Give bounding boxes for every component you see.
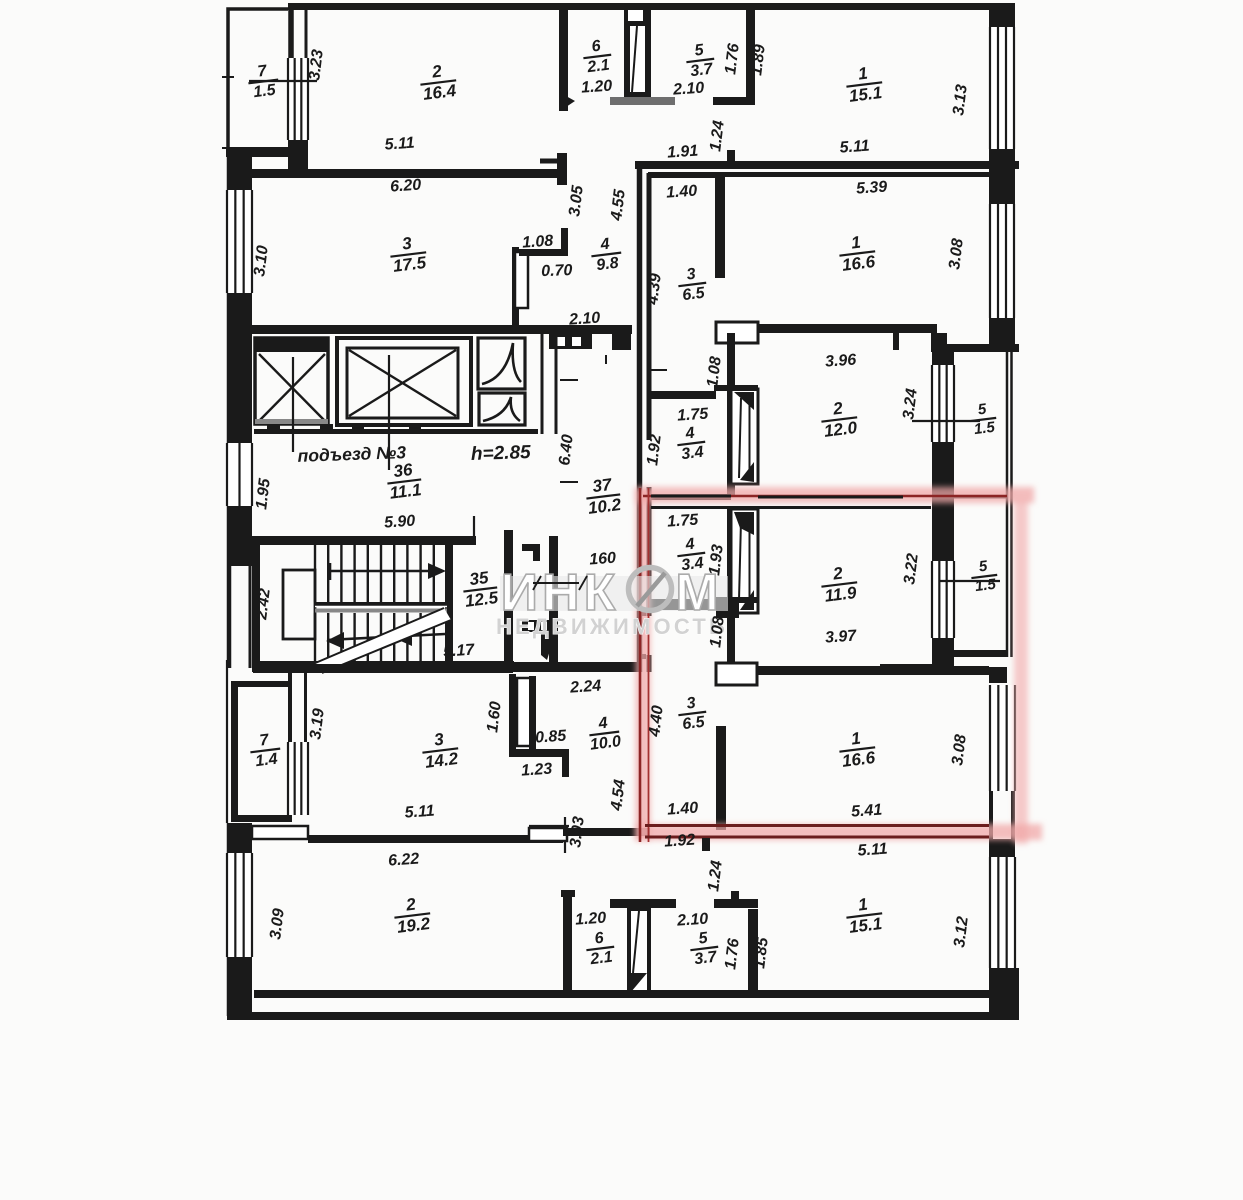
svg-text:1.5: 1.5 bbox=[252, 81, 277, 101]
svg-text:3.7: 3.7 bbox=[689, 60, 714, 80]
svg-text:11.1: 11.1 bbox=[389, 480, 423, 503]
svg-text:11.9: 11.9 bbox=[824, 583, 858, 606]
svg-text:5.41: 5.41 bbox=[851, 802, 883, 821]
svg-text:2.24: 2.24 bbox=[569, 678, 602, 697]
svg-text:0.85: 0.85 bbox=[535, 727, 568, 746]
svg-text:2.1: 2.1 bbox=[585, 57, 610, 77]
svg-text:3.96: 3.96 bbox=[825, 352, 857, 371]
svg-text:1.40: 1.40 bbox=[667, 800, 699, 819]
svg-text:10.2: 10.2 bbox=[587, 495, 623, 518]
svg-text:3.4: 3.4 bbox=[680, 444, 704, 464]
svg-text:12.5: 12.5 bbox=[464, 588, 500, 611]
svg-text:подъезд №3: подъезд №3 bbox=[297, 442, 406, 466]
svg-text:h=2.85: h=2.85 bbox=[471, 442, 532, 465]
svg-text:15.1: 15.1 bbox=[848, 914, 883, 937]
svg-text:16.4: 16.4 bbox=[422, 81, 458, 104]
svg-text:17.5: 17.5 bbox=[392, 253, 428, 276]
svg-text:36: 36 bbox=[392, 460, 414, 481]
svg-text:6.5: 6.5 bbox=[681, 713, 706, 733]
svg-text:2.1: 2.1 bbox=[588, 949, 613, 969]
svg-text:3.4: 3.4 bbox=[680, 555, 704, 575]
svg-text:3.7: 3.7 bbox=[693, 948, 718, 968]
svg-text:1.5: 1.5 bbox=[973, 419, 996, 438]
svg-text:1.20: 1.20 bbox=[581, 78, 613, 97]
svg-text:1.08: 1.08 bbox=[522, 233, 554, 252]
svg-text:35: 35 bbox=[468, 568, 490, 589]
svg-text:1.40: 1.40 bbox=[666, 183, 698, 202]
svg-text:5.11: 5.11 bbox=[404, 803, 435, 822]
svg-text:19.2: 19.2 bbox=[396, 914, 432, 937]
svg-text:2.10: 2.10 bbox=[676, 911, 709, 930]
svg-text:1.75: 1.75 bbox=[677, 405, 710, 424]
svg-text:5.11: 5.11 bbox=[384, 135, 415, 154]
svg-text:1.20: 1.20 bbox=[575, 910, 607, 929]
svg-text:5.11: 5.11 bbox=[857, 841, 888, 860]
svg-text:5.17: 5.17 bbox=[443, 641, 476, 660]
svg-text:5.90: 5.90 bbox=[384, 513, 416, 532]
svg-text:5.39: 5.39 bbox=[856, 179, 888, 198]
svg-text:6.5: 6.5 bbox=[681, 284, 706, 304]
svg-text:14.2: 14.2 bbox=[424, 749, 460, 772]
svg-text:1.92: 1.92 bbox=[664, 832, 696, 851]
svg-text:1.75: 1.75 bbox=[667, 511, 700, 530]
svg-text:1.4: 1.4 bbox=[254, 751, 278, 771]
svg-text:15.1: 15.1 bbox=[848, 83, 883, 106]
svg-text:0.70: 0.70 bbox=[541, 262, 573, 280]
svg-text:2.10: 2.10 bbox=[568, 310, 601, 329]
svg-text:3.97: 3.97 bbox=[825, 627, 858, 646]
svg-text:5.11: 5.11 bbox=[839, 138, 870, 157]
svg-text:1.91: 1.91 bbox=[667, 143, 699, 162]
svg-text:2.10: 2.10 bbox=[672, 80, 705, 99]
svg-text:НЕДВИЖИМОСТЬ: НЕДВИЖИМОСТЬ bbox=[496, 614, 728, 639]
svg-text:16.6: 16.6 bbox=[841, 252, 877, 275]
svg-text:6.22: 6.22 bbox=[388, 851, 420, 870]
svg-text:12.0: 12.0 bbox=[823, 418, 859, 441]
svg-text:160: 160 bbox=[589, 550, 617, 569]
svg-text:1.23: 1.23 bbox=[521, 761, 553, 780]
svg-text:1.5: 1.5 bbox=[974, 576, 997, 595]
svg-text:6.20: 6.20 bbox=[390, 177, 422, 196]
svg-text:16.6: 16.6 bbox=[841, 748, 877, 771]
svg-text:9.8: 9.8 bbox=[595, 255, 619, 275]
